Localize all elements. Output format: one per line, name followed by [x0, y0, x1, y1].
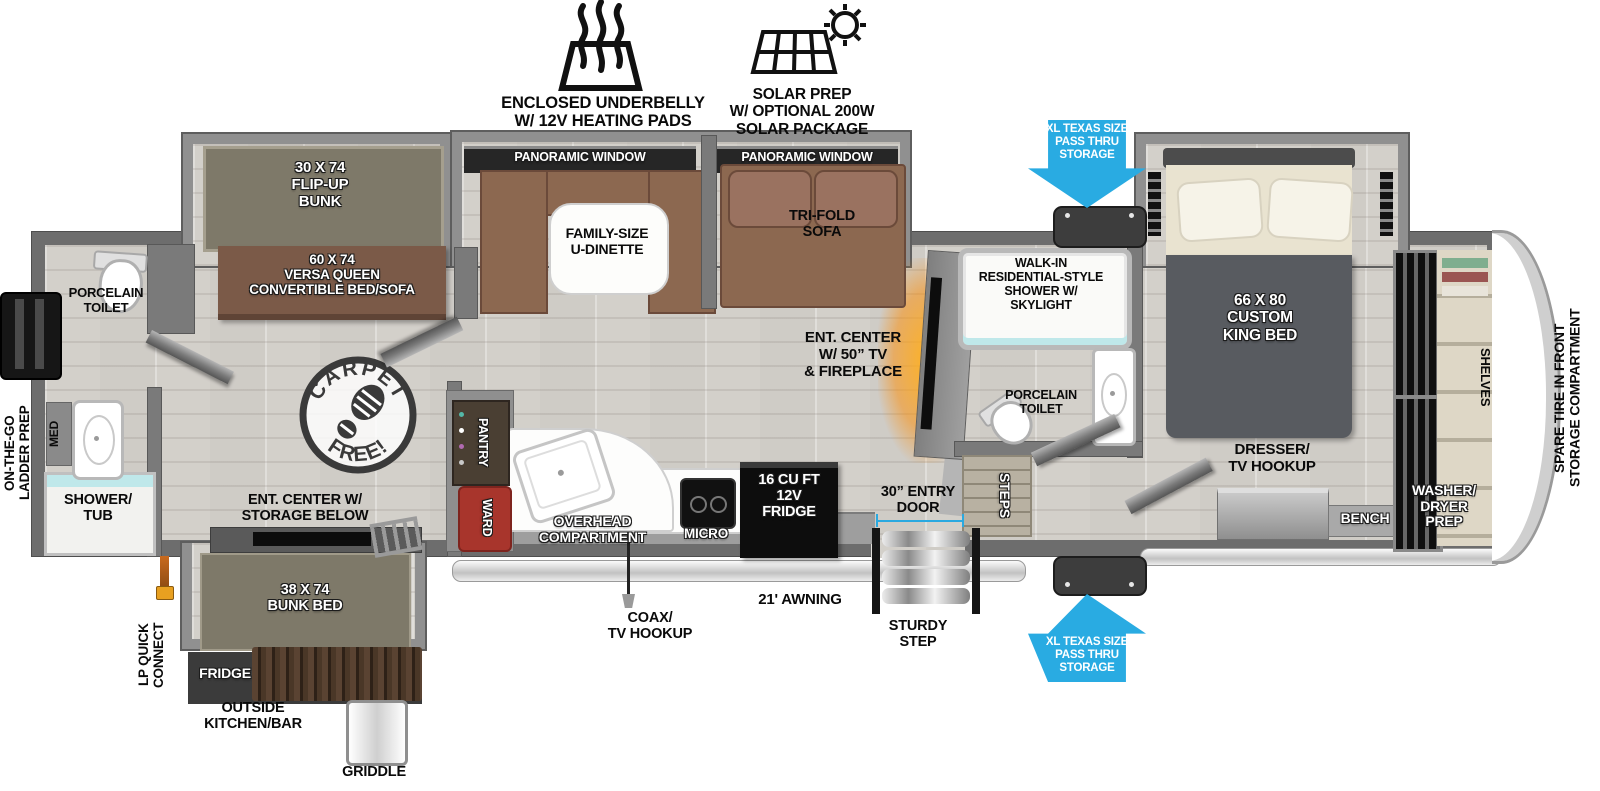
entry-dimension-line: [876, 520, 964, 522]
panoramic-window-right-label: PANORAMIC WINDOW: [716, 150, 898, 164]
fridge-12v-label: 16 CU FT 12V FRIDGE: [744, 472, 834, 521]
heating-pads-icon: [543, 0, 658, 92]
ward-label: WARD: [472, 490, 494, 546]
toilet-mid-label: PORCELAIN TOILET: [998, 388, 1084, 416]
floorplan: ENCLOSED UNDERBELLY W/ 12V HEATING PADS …: [0, 0, 1600, 791]
griddle-label: GRIDDLE: [334, 764, 414, 780]
lp-fitting-icon: [156, 586, 174, 600]
spare-tire-label: SPARE TIRE IN FRONT STORAGE COMPARTMENT: [1552, 278, 1598, 518]
shower-tub-label: SHOWER/ TUB: [50, 492, 146, 524]
linen: [1442, 286, 1488, 296]
flip-up-bunk-label: 30 X 74 FLIP-UP BUNK: [240, 160, 400, 210]
lp-connect-icon: [160, 556, 169, 590]
bedroom-window-left: [1148, 172, 1161, 236]
bedroom-window-right: [1380, 172, 1393, 236]
outside-bar-top: [252, 647, 422, 701]
steps-label: STEPS: [978, 458, 1012, 532]
pass-thru-door-top: [1053, 206, 1147, 248]
pass-thru-arrow-bottom: XL TEXAS SIZE PASS THRU STORAGE: [1028, 594, 1146, 682]
u-dinette-label: FAMILY-SIZE U-DINETTE: [532, 226, 682, 257]
microwave-cooktop-icon: [680, 478, 736, 529]
overhead-compartment-label: OVERHEAD COMPARTMENT: [505, 514, 680, 545]
pass-thru-arrow-top: XL TEXAS SIZE PASS THRU STORAGE: [1028, 120, 1146, 208]
bench-label: BENCH: [1328, 511, 1402, 527]
awning-label: 21' AWNING: [735, 592, 865, 609]
dresser-label: DRESSER/ TV HOOKUP: [1197, 442, 1347, 476]
solar-panel-icon: [745, 2, 870, 86]
solar-label: SOLAR PREP W/ OPTIONAL 200W SOLAR PACKAG…: [722, 86, 882, 138]
hall-wall-stub: [455, 248, 477, 318]
versa-queen-label: 60 X 74 VERSA QUEEN CONVERTIBLE BED/SOFA: [222, 252, 442, 297]
sink-icon: [72, 400, 124, 480]
king-bed-label: 66 X 80 CUSTOM KING BED: [1190, 292, 1330, 344]
panoramic-window-left-label: PANORAMIC WINDOW: [470, 150, 690, 164]
sturdy-step-label: STURDY STEP: [870, 618, 966, 650]
griddle-icon: [346, 700, 408, 766]
linen: [1442, 258, 1488, 268]
med-label: MED: [48, 408, 68, 460]
underbelly-label: ENCLOSED UNDERBELLY W/ 12V HEATING PADS: [498, 94, 708, 131]
bunk-bed-label: 38 X 74 BUNK BED: [215, 582, 395, 614]
bed-pillow: [1176, 177, 1264, 243]
tri-fold-sofa-label: TRI-FOLD SOFA: [747, 208, 897, 240]
pass-thru-top-label: XL TEXAS SIZE PASS THRU STORAGE: [1028, 123, 1146, 162]
pantry-label: PANTRY: [468, 404, 490, 480]
ent-center-storage-label: ENT. CENTER W/ STORAGE BELOW: [225, 492, 385, 524]
pass-thru-bottom-label: XL TEXAS SIZE PASS THRU STORAGE: [1028, 636, 1146, 675]
toilet-rear-label: PORCELAIN TOILET: [52, 286, 160, 315]
linen: [1442, 272, 1488, 282]
ladder-prep-label: ON-THE-GO LADDER PREP: [2, 388, 42, 518]
tv-screen: [253, 532, 371, 546]
ent-center-tv-label: ENT. CENTER W/ 50” TV & FIREPLACE: [778, 330, 928, 380]
outside-fridge-label: FRIDGE: [190, 666, 260, 682]
body-molding: [1140, 548, 1502, 566]
pass-thru-door-bottom: [1053, 556, 1147, 596]
entry-door-label: 30” ENTRY DOOR: [858, 484, 978, 516]
washer-dryer-label: WASHER/ DRYER PREP: [1398, 483, 1490, 530]
walk-in-shower-label: WALK-IN RESIDENTIAL-STYLE SHOWER W/ SKYL…: [962, 256, 1120, 312]
wardrobe-upper: [1393, 250, 1443, 398]
coax-plug-icon: [622, 594, 635, 608]
shelves-label: SHELVES: [1470, 322, 1492, 432]
sturdy-step-icon: [872, 528, 980, 614]
micro-label: MICRO: [674, 526, 738, 541]
outside-kitchen-label: OUTSIDE KITCHEN/BAR: [178, 700, 328, 732]
king-bed: [1166, 255, 1352, 438]
coax-label: COAX/ TV HOOKUP: [595, 610, 705, 642]
dresser: [1217, 488, 1329, 540]
lp-quick-connect-label: LP QUICK CONNECT: [136, 600, 178, 710]
slide-divider-wall: [702, 136, 716, 308]
bed-pillow: [1266, 177, 1354, 243]
carpet-free-badge: CARPET FREE!: [296, 353, 420, 477]
